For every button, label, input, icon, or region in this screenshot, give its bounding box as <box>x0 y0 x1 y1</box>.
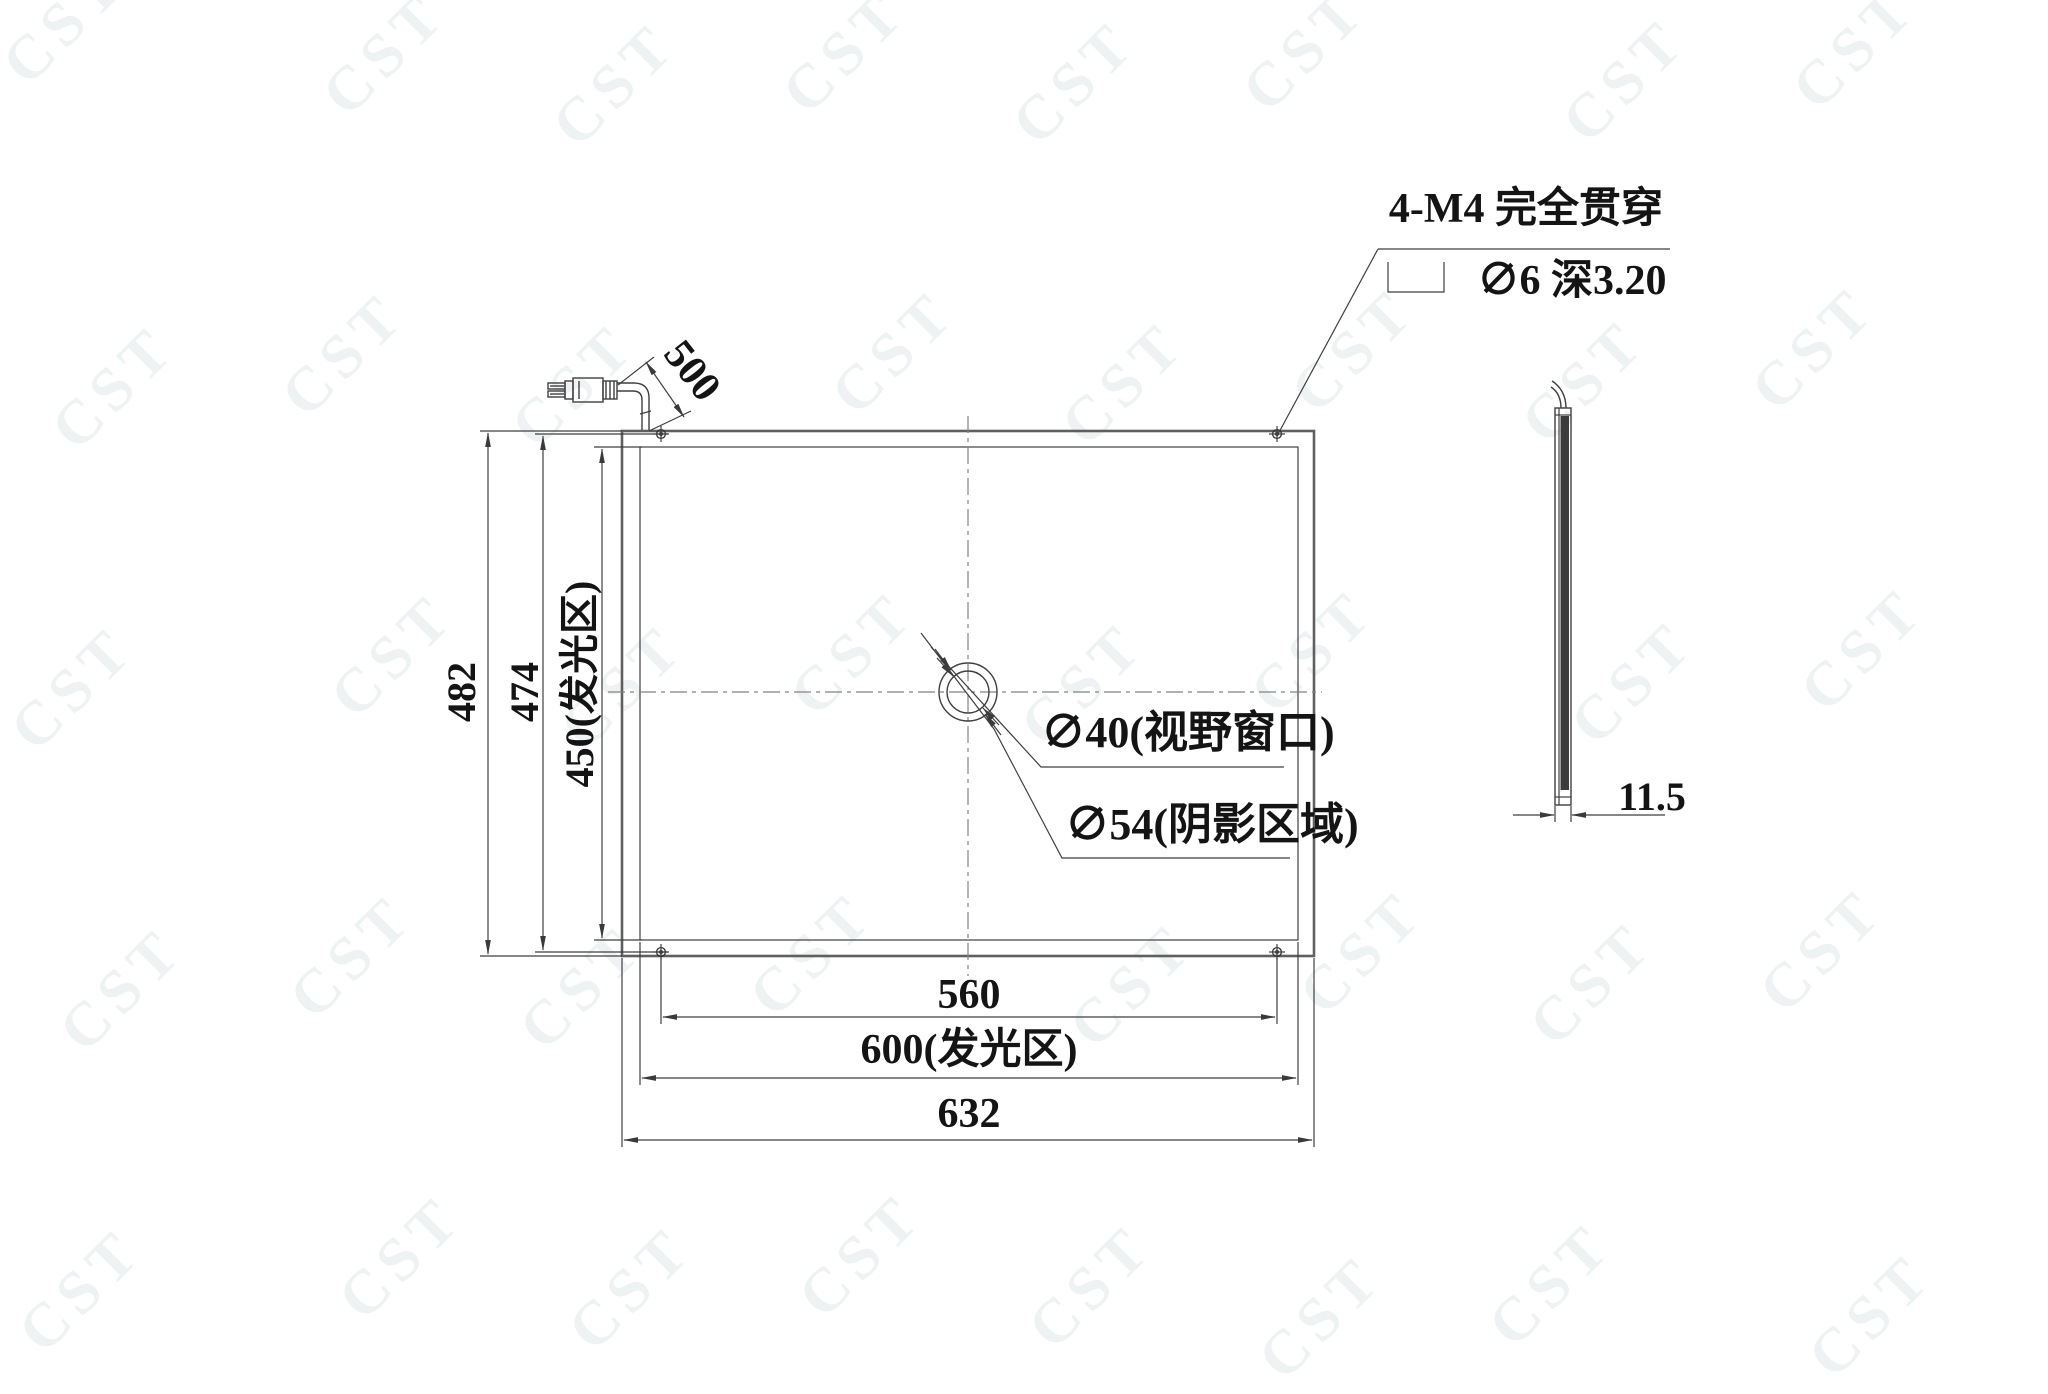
dimension-cable-length <box>618 357 691 431</box>
counterbore-icon <box>1388 262 1444 292</box>
mounting-hole-bottom-right <box>1269 944 1285 960</box>
side-view <box>1513 381 1665 822</box>
drawing-canvas <box>0 0 2048 1366</box>
mounting-hole-top-right <box>1269 426 1285 442</box>
dimension-thickness <box>1513 806 1665 822</box>
dimension-overall-height <box>480 431 622 956</box>
front-view <box>480 249 1670 1147</box>
side-cable-line <box>1551 387 1561 408</box>
side-cable-line <box>1552 381 1566 408</box>
cad-drawing-page: { "colors": { "line": "#3f3f3f", "thick_… <box>0 0 2048 1366</box>
dimension-emitting-height <box>594 447 642 940</box>
dimension-emitting-width <box>640 942 1298 1085</box>
side-profile-dark-strip <box>1561 416 1570 790</box>
emitting-area-outline <box>640 447 1298 940</box>
dimension-overall-width <box>622 958 1314 1147</box>
mounting-holes <box>653 426 1285 960</box>
leader-view-window <box>931 647 1284 767</box>
connector-latch <box>565 381 573 399</box>
leader-shadow-area <box>921 633 1290 858</box>
thread-note-leader <box>1277 249 1670 436</box>
cable-inner-line <box>617 391 642 430</box>
cable-outer-line <box>617 383 649 430</box>
cable-connector <box>548 378 651 430</box>
dimension-hole-span-width <box>661 958 1277 1024</box>
connector-body <box>573 378 603 402</box>
